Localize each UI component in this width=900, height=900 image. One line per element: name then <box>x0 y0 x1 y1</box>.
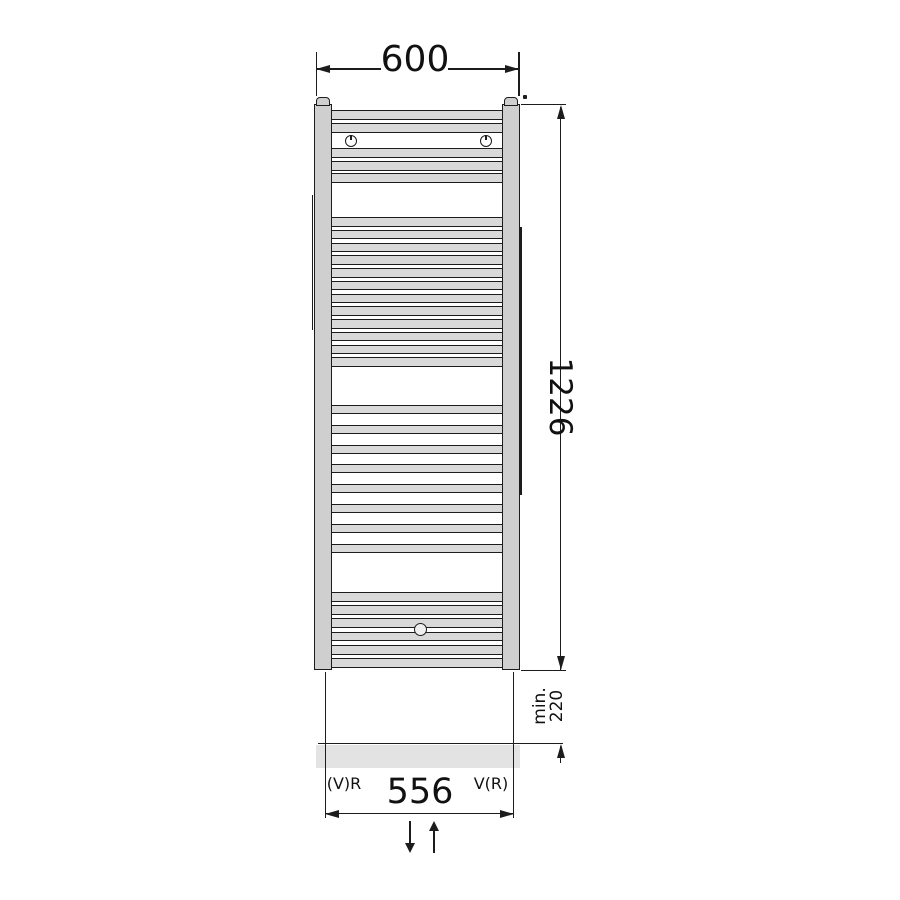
extension-line <box>513 672 514 818</box>
extension-line <box>316 52 317 96</box>
arrowhead-up-icon <box>557 105 565 119</box>
radiator-tube <box>330 173 504 183</box>
radiator-tube <box>330 281 504 291</box>
radiator-tube <box>330 645 504 655</box>
arrowhead-left-icon <box>316 65 330 73</box>
right-column-outer-edge-line <box>520 227 522 495</box>
arrowhead-down-icon <box>557 656 565 670</box>
radiator-tube <box>330 319 504 329</box>
radiator-tube <box>330 464 504 473</box>
radiator-tube <box>330 658 504 668</box>
radiator-tube <box>330 217 504 227</box>
radiator-tube <box>330 445 504 454</box>
width-dimension-label: 600 <box>379 42 451 78</box>
radiator-tube <box>330 405 504 414</box>
radiator-tube <box>330 306 504 316</box>
radiator-tube <box>330 425 504 434</box>
flow-up-arrow-icon <box>433 830 436 853</box>
flow-down-arrowhead-icon <box>405 843 415 853</box>
floor-clearance-label: min. 220 <box>540 671 558 741</box>
extension-line <box>518 52 519 96</box>
arrowhead-right-icon <box>500 810 514 818</box>
wall-bracket-icon <box>480 135 492 147</box>
radiator-tube <box>330 110 504 120</box>
radiator-tube <box>330 544 504 553</box>
floor-band <box>316 745 520 768</box>
radiator-tube <box>330 255 504 265</box>
radiator-tube <box>330 294 504 304</box>
radiator-tube <box>330 484 504 493</box>
flow-down-arrow-icon <box>409 821 412 844</box>
radiator-tube <box>330 592 504 602</box>
radiator-tube <box>330 345 504 355</box>
reference-dot <box>523 95 527 99</box>
left-column-outer-edge-line <box>312 195 314 330</box>
vent-plug-icon <box>414 623 427 636</box>
arrowhead-up-icon <box>557 744 565 758</box>
wall-bracket-icon <box>345 135 357 147</box>
left-column-top-cap <box>316 97 330 106</box>
radiator-tube <box>330 504 504 513</box>
connection-spacing-label: 556 <box>384 775 456 810</box>
left-collector-column <box>314 104 332 670</box>
radiator-tube <box>330 243 504 253</box>
radiator-tube <box>330 148 504 158</box>
connection-label-left: (V)R <box>321 776 367 792</box>
radiator-tube <box>330 123 504 133</box>
dimension-line <box>325 813 514 814</box>
dimension-drawing-canvas: 600 1226 min. 220 556 (V)R V(R) <box>0 0 900 900</box>
radiator-tube <box>330 524 504 533</box>
radiator-tube <box>330 268 504 278</box>
radiator-tube <box>330 605 504 615</box>
arrowhead-left-icon <box>325 810 339 818</box>
right-collector-column <box>502 104 520 670</box>
extension-line <box>325 672 326 818</box>
radiator-tube <box>330 161 504 171</box>
radiator-tube <box>330 332 504 342</box>
radiator-tube <box>330 357 504 367</box>
right-column-top-cap <box>504 97 518 106</box>
radiator-tube <box>330 230 504 240</box>
connection-label-right: V(R) <box>468 776 514 792</box>
arrowhead-right-icon <box>505 65 519 73</box>
